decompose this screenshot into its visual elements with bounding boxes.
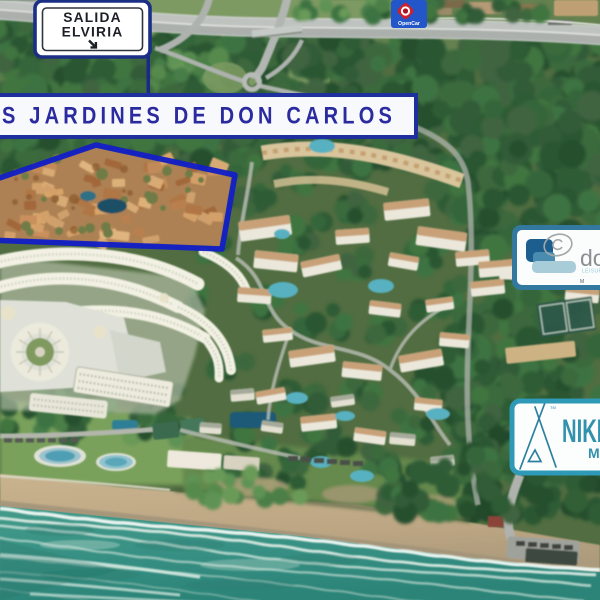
svg-text:SALIDA: SALIDA bbox=[63, 10, 122, 25]
svg-text:do: do bbox=[580, 245, 600, 271]
svg-text:ELVIRIA: ELVIRIA bbox=[62, 25, 124, 40]
svg-text:NIKKI: NIKKI bbox=[562, 413, 600, 449]
svg-text:M: M bbox=[588, 445, 600, 461]
svg-text:OpenCar: OpenCar bbox=[398, 21, 420, 27]
svg-text:M: M bbox=[580, 279, 584, 285]
svg-text:TM: TM bbox=[550, 405, 556, 410]
svg-text:S JARDINES DE DON CARLOS: S JARDINES DE DON CARLOS bbox=[2, 103, 396, 130]
svg-text:LEISUR: LEISUR bbox=[582, 269, 600, 275]
